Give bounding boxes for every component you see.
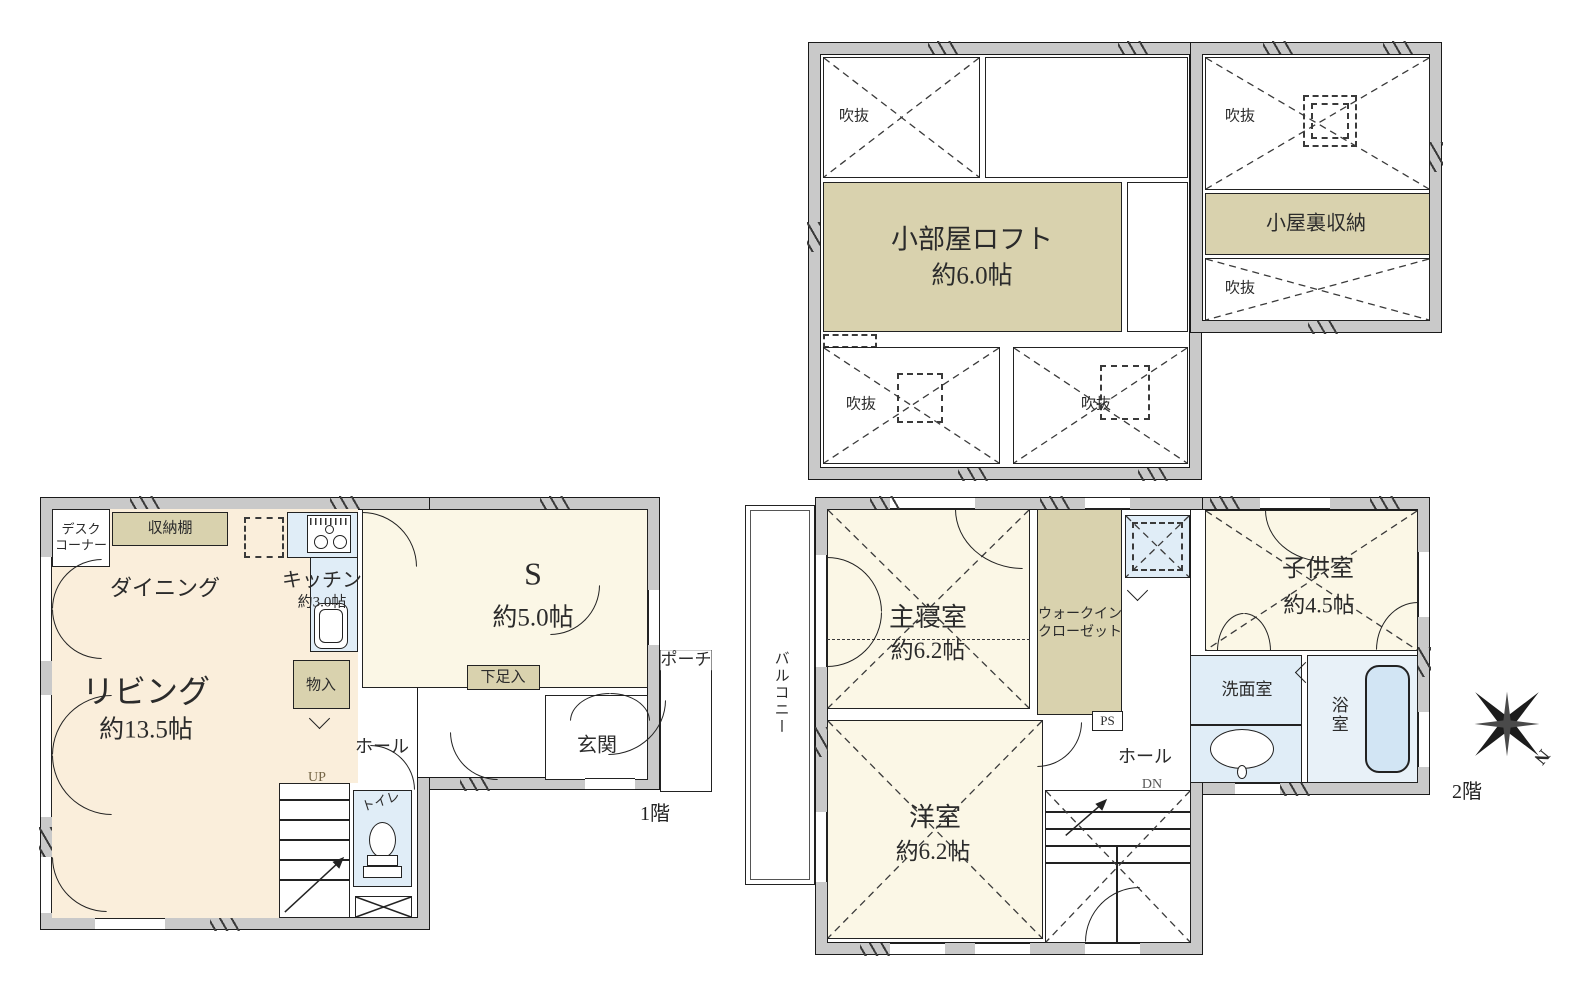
wall-hatch-icon — [39, 827, 52, 857]
second-floor-plan: PS バルコニー 主寝室 約6.2帖 ウォークイン クローゼット 子供室 約4. — [740, 497, 1560, 957]
wic-label: ウォークイン — [1038, 607, 1122, 623]
floor1-caption: 1階 — [640, 797, 670, 826]
void-label: 吹抜 — [846, 396, 876, 413]
desk-corner-label: デスク — [61, 523, 100, 538]
window — [1085, 943, 1140, 955]
wall-hatch-icon — [1280, 783, 1310, 796]
void-label: 吹抜 — [1225, 108, 1255, 125]
understairs-box — [355, 896, 412, 918]
window — [975, 943, 1030, 955]
balcony-label: バルコニー — [771, 651, 788, 736]
kids-room-label: 子供室 — [1282, 556, 1354, 584]
toplight-mark-inner — [1311, 103, 1349, 139]
dining-label: ダイニング — [110, 575, 220, 600]
porch-label: ポーチ — [661, 650, 712, 670]
first-floor-plan: デスク コーナー 収納棚 ダイニング キッチン 約3.0帖 S 約5.0帖 リビ… — [40, 497, 720, 937]
wall-hatch-icon — [1040, 496, 1070, 509]
attic-storage-label: 小屋裏収納 — [1266, 213, 1366, 236]
window — [40, 857, 52, 913]
washroom-label: 洗面室 — [1222, 680, 1273, 700]
western-room-size-label: 約6.2帖 — [896, 839, 971, 865]
toilet-base-icon — [363, 866, 402, 878]
wall-hatch-icon — [1418, 647, 1431, 677]
stairs-up — [279, 783, 350, 918]
shoe-box-label: 下足入 — [480, 669, 525, 686]
hall-label: ホール — [1118, 747, 1172, 768]
toilet-bowl-icon — [369, 822, 396, 858]
toplight-dashed-frame — [1132, 522, 1183, 571]
window — [1418, 712, 1430, 767]
bathtub-icon — [1365, 665, 1410, 773]
counter-line — [1191, 724, 1301, 726]
wall-hatch-icon — [928, 41, 958, 54]
wall-hatch-icon — [958, 468, 988, 481]
wall-hatch-icon — [330, 496, 360, 509]
window — [815, 555, 827, 667]
wall-hatch-icon — [540, 496, 570, 509]
kids-room-size-label: 約4.5帖 — [1283, 592, 1355, 617]
storage-label: 物入 — [306, 677, 336, 694]
window — [585, 778, 635, 790]
void-label: 吹抜 — [1225, 280, 1255, 297]
loft-plan: 吹抜 吹抜 吹抜 吹抜 吹抜 小部屋ロフト 約6.0帖 小屋裏収納 — [808, 42, 1448, 482]
pipe-space-box: PS — [1092, 711, 1123, 731]
service-room-size-label: 約5.0帖 — [492, 605, 573, 634]
shelf-label: 収納棚 — [147, 520, 192, 537]
ps-label: PS — [1100, 714, 1114, 729]
window — [1235, 783, 1280, 795]
void-label: 吹抜 — [1081, 396, 1111, 413]
toplight-mark — [897, 373, 943, 423]
kitchen-size-label: 約3.0帖 — [298, 594, 347, 611]
living-size-label: 約13.5帖 — [99, 717, 193, 746]
wall-hatch-icon — [1263, 41, 1293, 54]
window — [1418, 552, 1430, 617]
window — [890, 497, 975, 509]
wall-hatch-icon — [1430, 142, 1443, 172]
hall-label: ホール — [355, 737, 409, 758]
wall-hatch-icon — [870, 496, 900, 509]
window — [40, 557, 52, 661]
wall-hatch-icon — [1118, 41, 1148, 54]
sink-basin-icon — [319, 609, 343, 643]
compass-star-icon — [1443, 660, 1570, 787]
floor2-caption: 2階 — [1452, 775, 1482, 804]
service-room-label: S — [524, 556, 542, 593]
burner-icon — [333, 535, 347, 549]
porch — [660, 650, 712, 792]
loft-room-name: 小部屋ロフト — [891, 224, 1053, 255]
master-bedroom-label: 主寝室 — [889, 603, 967, 633]
bathroom-label: 浴室 — [1328, 696, 1348, 734]
stove-icon — [307, 515, 351, 553]
window — [890, 943, 945, 955]
wall-hatch-icon — [1370, 496, 1400, 509]
loft-room-size: 約6.0帖 — [931, 263, 1012, 292]
window — [815, 812, 827, 882]
window — [95, 918, 165, 930]
window — [648, 590, 660, 645]
loft-side-strip — [1127, 182, 1188, 332]
wall-hatch-icon — [1210, 496, 1240, 509]
loft-ladder-mark — [823, 334, 877, 348]
wall-hatch-icon — [1383, 41, 1413, 54]
floorplan-canvas: { "loft": { "void_label": "吹抜", "loft_ro… — [0, 0, 1586, 984]
up-label: UP — [308, 770, 326, 786]
wall-hatch-icon — [460, 778, 490, 791]
wall-hatch-icon — [1138, 468, 1168, 481]
wic-label2: クローゼット — [1038, 625, 1122, 641]
dn-label: DN — [1142, 777, 1162, 793]
wall-hatch-icon — [1308, 321, 1338, 334]
wall-hatch-icon — [807, 222, 820, 252]
washbasin-icon — [1210, 729, 1274, 769]
void-label: 吹抜 — [839, 108, 869, 125]
wall-hatch-icon — [210, 918, 240, 931]
window — [1085, 497, 1130, 509]
window — [40, 695, 52, 817]
window — [1260, 497, 1330, 509]
wall-hatch-icon — [815, 727, 828, 757]
desk-corner-label2: コーナー — [55, 539, 107, 554]
burner-icon — [325, 525, 334, 534]
toilet-tank-icon — [367, 855, 398, 866]
cross-box-icon — [356, 897, 411, 917]
kitchen-label: キッチン — [282, 570, 362, 593]
faucet-icon — [1237, 765, 1247, 779]
stair-arrow-icon — [280, 784, 349, 917]
loft-open-room — [985, 57, 1188, 178]
burner-icon — [314, 535, 328, 549]
living-label: リビング — [82, 674, 210, 711]
western-room-label: 洋室 — [909, 803, 961, 833]
stove-grill-icon — [310, 518, 348, 525]
master-bedroom-size-label: 約6.2帖 — [891, 638, 966, 664]
wall-hatch-icon — [860, 943, 890, 956]
entrance-label: 玄関 — [577, 735, 617, 758]
refrigerator-space — [244, 517, 284, 558]
wall-hatch-icon — [130, 496, 160, 509]
loft-small-room — [823, 182, 1122, 332]
